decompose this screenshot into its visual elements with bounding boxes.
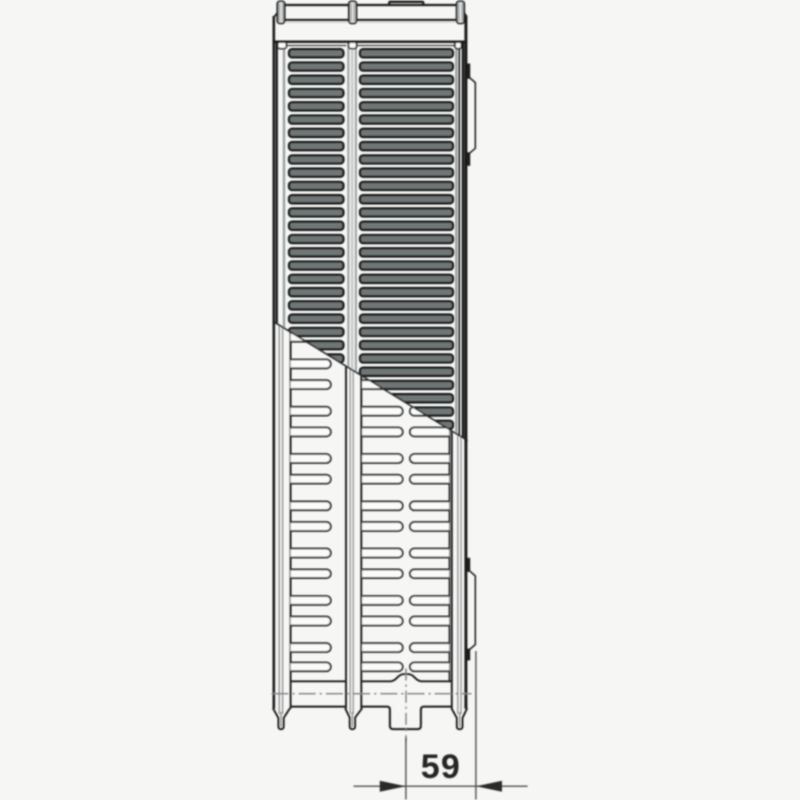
svg-text:59: 59 — [421, 748, 461, 786]
